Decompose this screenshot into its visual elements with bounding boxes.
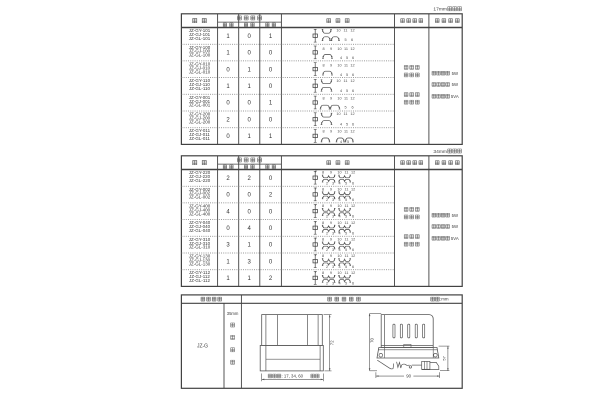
svg-text:3: 3 (332, 231, 334, 235)
svg-text:11: 11 (345, 238, 349, 242)
svg-text:70: 70 (369, 338, 374, 343)
svg-text:3: 3 (332, 282, 334, 286)
svg-text:2: 2 (326, 248, 328, 252)
svg-text:10: 10 (337, 96, 341, 100)
svg-text:10: 10 (337, 129, 341, 133)
svg-text:6: 6 (352, 181, 354, 185)
svg-text:8: 8 (322, 187, 324, 191)
svg-text:11: 11 (345, 221, 349, 225)
svg-text:6: 6 (352, 56, 354, 60)
svg-text:9: 9 (330, 187, 332, 191)
svg-text:4: 4 (338, 198, 340, 202)
svg-text:8: 8 (322, 238, 324, 242)
svg-text:4: 4 (340, 89, 342, 93)
svg-text:12: 12 (350, 112, 354, 116)
svg-text:10: 10 (336, 112, 340, 116)
svg-text:12: 12 (350, 79, 354, 83)
svg-text:3: 3 (332, 215, 334, 219)
svg-text:9: 9 (330, 64, 332, 68)
svg-text:3: 3 (332, 181, 334, 185)
svg-text:5W: 5W (452, 213, 459, 218)
svg-text:5: 5 (344, 105, 346, 109)
svg-text:JZ-GL-310: JZ-GL-310 (189, 245, 211, 250)
svg-text:7: 7 (315, 186, 317, 190)
svg-text:10: 10 (336, 79, 340, 83)
svg-text:4: 4 (340, 56, 342, 60)
svg-text:2: 2 (326, 265, 328, 269)
svg-text:4: 4 (338, 231, 340, 235)
svg-text:8: 8 (322, 271, 324, 275)
svg-text:2: 2 (326, 181, 328, 185)
svg-text:11: 11 (345, 171, 349, 175)
svg-text:7: 7 (315, 237, 317, 241)
svg-text:7: 7 (315, 170, 317, 174)
svg-text:11: 11 (344, 96, 348, 100)
svg-text:5: 5 (345, 231, 347, 235)
svg-text:5: 5 (344, 38, 346, 42)
svg-text:90: 90 (406, 374, 411, 379)
svg-text:: 17, 34, 60: : 17, 34, 60 (282, 374, 304, 379)
svg-text:4: 4 (338, 265, 340, 269)
svg-text:11: 11 (344, 47, 348, 51)
svg-text:4: 4 (340, 122, 342, 126)
svg-text:5: 5 (345, 215, 347, 219)
svg-text:12: 12 (350, 47, 354, 51)
svg-text:12: 12 (350, 29, 354, 33)
svg-text:5: 5 (345, 248, 347, 252)
svg-text:5: 5 (346, 73, 348, 77)
svg-text:9: 9 (330, 254, 332, 258)
svg-text:JZ-GL-400: JZ-GL-400 (189, 211, 211, 216)
svg-text:35mm: 35mm (227, 311, 239, 316)
svg-text:7: 7 (315, 253, 317, 257)
svg-text:34mm: 34mm (433, 149, 447, 155)
svg-text:2: 2 (326, 282, 328, 286)
svg-text:JZ-GL-002: JZ-GL-002 (189, 195, 211, 200)
svg-text:12: 12 (351, 271, 355, 275)
svg-text:12: 12 (351, 221, 355, 225)
svg-text:4: 4 (340, 140, 342, 144)
svg-text:JZ-GL-101: JZ-GL-101 (189, 36, 211, 41)
svg-text:6: 6 (351, 38, 353, 42)
svg-text:4: 4 (338, 215, 340, 219)
svg-text:2: 2 (326, 231, 328, 235)
svg-text:6: 6 (352, 73, 354, 77)
svg-text:10: 10 (336, 29, 340, 33)
svg-text:12: 12 (351, 254, 355, 258)
svg-text:10: 10 (337, 47, 341, 51)
svg-text:JZ-GL-220: JZ-GL-220 (189, 178, 211, 183)
svg-text:6: 6 (352, 231, 354, 235)
svg-text:5W: 5W (452, 224, 459, 229)
svg-text:12: 12 (351, 238, 355, 242)
svg-text:5: 5 (345, 265, 347, 269)
svg-text:8: 8 (322, 171, 324, 175)
svg-text:11: 11 (345, 187, 349, 191)
svg-text:JZ-GL-001: JZ-GL-001 (189, 103, 211, 108)
svg-text:6: 6 (352, 248, 354, 252)
svg-text:4: 4 (338, 181, 340, 185)
svg-text:6: 6 (352, 122, 354, 126)
svg-text:8: 8 (322, 221, 324, 225)
svg-text:8: 8 (322, 64, 324, 68)
svg-text:10: 10 (337, 64, 341, 68)
svg-text:10: 10 (337, 204, 341, 208)
svg-text:5: 5 (345, 198, 347, 202)
svg-text:5W: 5W (452, 71, 459, 76)
svg-text:3: 3 (332, 198, 334, 202)
svg-text:10: 10 (337, 171, 341, 175)
svg-text:11: 11 (345, 254, 349, 258)
svg-text:JZ-GL-010: JZ-GL-010 (189, 69, 211, 74)
svg-text:9: 9 (330, 47, 332, 51)
svg-text:JZ-GL-040: JZ-GL-040 (189, 228, 211, 233)
svg-text:57: 57 (441, 356, 446, 360)
svg-text:8: 8 (322, 204, 324, 208)
svg-text:12: 12 (350, 64, 354, 68)
svg-text:5W: 5W (452, 82, 459, 87)
svg-text:10: 10 (337, 238, 341, 242)
svg-text:11: 11 (344, 79, 348, 83)
svg-text:6: 6 (352, 282, 354, 286)
svg-text:4: 4 (338, 248, 340, 252)
svg-text:5: 5 (345, 181, 347, 185)
svg-text:9: 9 (330, 171, 332, 175)
svg-text:8: 8 (322, 96, 324, 100)
svg-text:6: 6 (352, 198, 354, 202)
svg-text:11: 11 (345, 204, 349, 208)
svg-text:2: 2 (326, 215, 328, 219)
svg-text:11: 11 (344, 64, 348, 68)
svg-text:JZ-G: JZ-G (197, 343, 208, 349)
svg-text:10: 10 (337, 271, 341, 275)
svg-text:8: 8 (322, 47, 324, 51)
svg-text:7: 7 (315, 220, 317, 224)
svg-text:12: 12 (350, 129, 354, 133)
svg-text:7: 7 (315, 203, 317, 207)
svg-text:JZ-GL-130: JZ-GL-130 (189, 261, 211, 266)
svg-text:10: 10 (337, 221, 341, 225)
svg-text:12: 12 (351, 204, 355, 208)
svg-text:JZ-GL-112: JZ-GL-112 (189, 278, 211, 283)
svg-text:12: 12 (351, 171, 355, 175)
svg-text:5: 5 (347, 140, 349, 144)
svg-text:8: 8 (322, 129, 324, 133)
svg-text:JZ-GL-110: JZ-GL-110 (189, 86, 211, 91)
svg-text:10: 10 (337, 254, 341, 258)
svg-text:11: 11 (344, 129, 348, 133)
svg-text:7: 7 (315, 270, 317, 274)
svg-text:2: 2 (326, 198, 328, 202)
svg-text:9: 9 (330, 204, 332, 208)
svg-text:12: 12 (351, 187, 355, 191)
svg-text:6: 6 (352, 265, 354, 269)
svg-text:11: 11 (344, 112, 348, 116)
svg-text:8: 8 (322, 254, 324, 258)
svg-text:9: 9 (330, 221, 332, 225)
svg-text:5VA: 5VA (451, 236, 459, 241)
svg-text:5VA: 5VA (451, 94, 459, 99)
svg-text:JZ-GL-200: JZ-GL-200 (189, 119, 211, 124)
svg-text:4: 4 (338, 282, 340, 286)
svg-text::mm: :mm (440, 297, 449, 302)
svg-text:11: 11 (344, 29, 348, 33)
svg-text:5: 5 (345, 282, 347, 286)
svg-text:6: 6 (352, 215, 354, 219)
svg-text:4: 4 (340, 73, 342, 77)
svg-text:5: 5 (346, 56, 348, 60)
svg-text:12: 12 (350, 96, 354, 100)
svg-text:9: 9 (330, 271, 332, 275)
svg-text:9: 9 (330, 96, 332, 100)
svg-text:6: 6 (351, 105, 353, 109)
svg-text:3: 3 (332, 248, 334, 252)
svg-text:11: 11 (345, 271, 349, 275)
svg-text:JZ-GL-011: JZ-GL-011 (189, 136, 211, 141)
svg-text:3: 3 (332, 265, 334, 269)
svg-text:5: 5 (346, 89, 348, 93)
svg-text:10: 10 (337, 187, 341, 191)
svg-text:6: 6 (352, 89, 354, 93)
svg-text:5: 5 (346, 122, 348, 126)
svg-text:72: 72 (330, 340, 335, 345)
svg-text:17mm: 17mm (433, 7, 447, 13)
svg-text:JZ-GL-100: JZ-GL-100 (189, 53, 211, 58)
svg-text:9: 9 (330, 129, 332, 133)
svg-text:9: 9 (330, 238, 332, 242)
